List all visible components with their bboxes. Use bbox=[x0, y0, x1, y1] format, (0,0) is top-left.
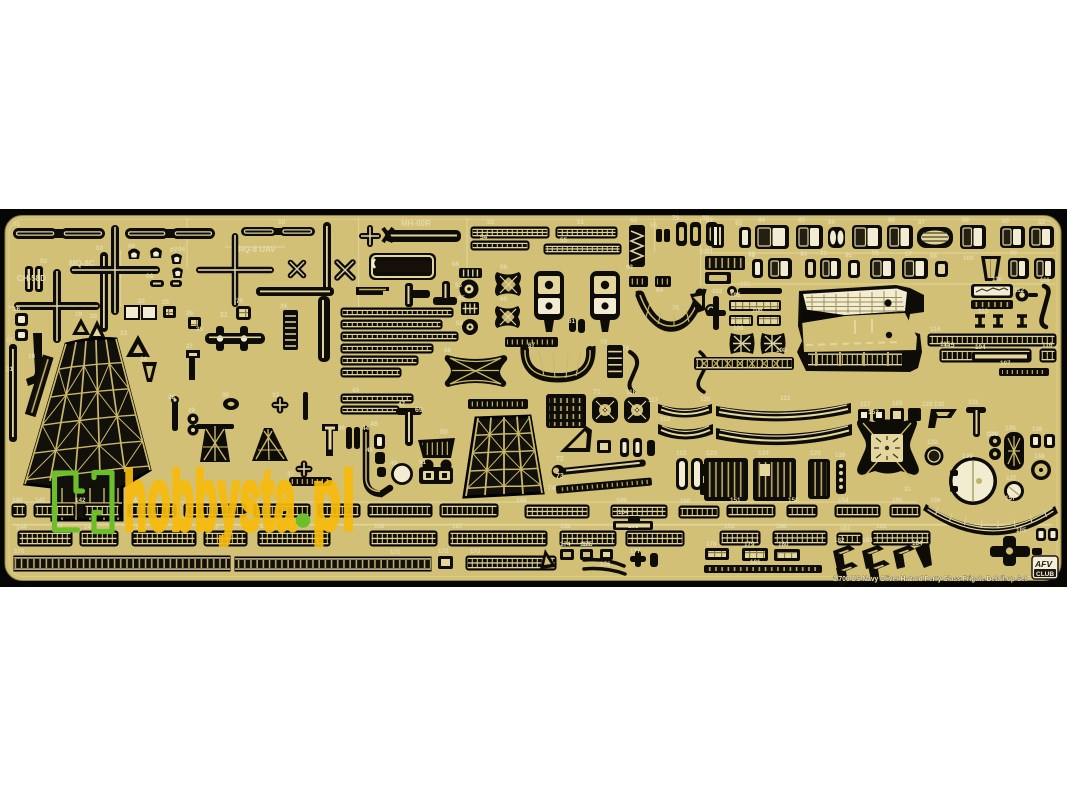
svg-text:MH-60R: MH-60R bbox=[401, 219, 431, 228]
svg-text:149: 149 bbox=[616, 497, 627, 504]
svg-text:124: 124 bbox=[758, 450, 769, 457]
svg-text:108: 108 bbox=[776, 347, 787, 354]
svg-text:54: 54 bbox=[480, 234, 488, 241]
svg-text:62: 62 bbox=[630, 217, 638, 224]
svg-text:109: 109 bbox=[733, 325, 744, 332]
svg-text:82: 82 bbox=[706, 217, 714, 224]
svg-text:123: 123 bbox=[706, 450, 717, 457]
svg-text:34: 34 bbox=[280, 303, 288, 310]
svg-text:57: 57 bbox=[905, 251, 913, 258]
svg-text:164: 164 bbox=[618, 509, 629, 516]
svg-text:44: 44 bbox=[362, 425, 370, 432]
svg-text:157: 157 bbox=[1005, 495, 1016, 502]
svg-text:31: 31 bbox=[904, 486, 912, 493]
svg-text:53: 53 bbox=[455, 282, 463, 289]
svg-text:49: 49 bbox=[390, 460, 398, 467]
svg-text:181: 181 bbox=[750, 559, 761, 566]
svg-text:139: 139 bbox=[962, 453, 973, 460]
svg-text:134: 134 bbox=[986, 431, 997, 438]
svg-text:122: 122 bbox=[676, 450, 687, 457]
svg-text:04: 04 bbox=[178, 246, 186, 253]
svg-text:137: 137 bbox=[1006, 475, 1017, 482]
svg-text:88: 88 bbox=[888, 217, 896, 224]
svg-text:115: 115 bbox=[940, 341, 951, 348]
svg-text:106: 106 bbox=[752, 307, 763, 314]
svg-text:177: 177 bbox=[630, 548, 641, 555]
svg-text:73: 73 bbox=[556, 473, 564, 480]
svg-text:140: 140 bbox=[12, 497, 23, 504]
svg-text:86: 86 bbox=[828, 219, 836, 226]
svg-text:CLUB: CLUB bbox=[1036, 571, 1054, 578]
svg-text:75: 75 bbox=[672, 305, 680, 312]
svg-text:51: 51 bbox=[419, 459, 427, 466]
svg-text:113: 113 bbox=[978, 308, 989, 315]
svg-text:07: 07 bbox=[170, 247, 178, 254]
svg-text:55: 55 bbox=[560, 237, 568, 244]
svg-text:112: 112 bbox=[1014, 287, 1025, 294]
svg-text:52: 52 bbox=[487, 219, 495, 226]
svg-text:100: 100 bbox=[963, 255, 974, 262]
svg-text:74: 74 bbox=[548, 485, 556, 492]
svg-text:131: 131 bbox=[968, 399, 979, 406]
svg-text:93: 93 bbox=[820, 250, 828, 257]
svg-text:141: 141 bbox=[35, 497, 46, 504]
svg-text:RQ-8 UAV: RQ-8 UAV bbox=[238, 245, 276, 254]
svg-text:16: 16 bbox=[13, 306, 21, 313]
svg-text:1/700 US Navy Oliver Hazard P: 1/700 US Navy Oliver Hazard Perry Class … bbox=[833, 574, 1027, 583]
svg-text:69: 69 bbox=[415, 407, 423, 414]
svg-text:85: 85 bbox=[798, 217, 806, 224]
svg-text:83: 83 bbox=[735, 220, 743, 227]
svg-text:144: 144 bbox=[16, 524, 27, 531]
svg-text:172: 172 bbox=[438, 548, 449, 555]
svg-text:116: 116 bbox=[1042, 342, 1053, 349]
svg-text:58: 58 bbox=[456, 320, 464, 327]
svg-text:102: 102 bbox=[712, 288, 723, 295]
svg-text:21: 21 bbox=[220, 312, 228, 319]
svg-text:150: 150 bbox=[680, 498, 691, 505]
svg-text:184: 184 bbox=[912, 540, 923, 547]
svg-text:45: 45 bbox=[366, 447, 374, 454]
svg-text:127: 127 bbox=[860, 401, 871, 408]
svg-text:111: 111 bbox=[1040, 277, 1050, 284]
svg-text:89: 89 bbox=[962, 217, 970, 224]
svg-text:155: 155 bbox=[892, 497, 903, 504]
svg-text:174: 174 bbox=[560, 541, 571, 548]
svg-text:65: 65 bbox=[458, 295, 466, 302]
svg-text:30: 30 bbox=[222, 392, 230, 399]
svg-text:151: 151 bbox=[730, 497, 741, 504]
svg-text:156: 156 bbox=[930, 497, 941, 504]
svg-text:22: 22 bbox=[138, 298, 146, 305]
svg-text:117: 117 bbox=[648, 397, 659, 404]
svg-text:20: 20 bbox=[90, 313, 98, 320]
svg-text:99: 99 bbox=[1010, 250, 1018, 257]
svg-text:59: 59 bbox=[500, 264, 508, 271]
svg-text:29: 29 bbox=[188, 407, 196, 414]
svg-text:46: 46 bbox=[338, 425, 346, 432]
svg-text:105: 105 bbox=[730, 292, 741, 299]
svg-text:167: 167 bbox=[452, 523, 463, 530]
svg-text:64: 64 bbox=[656, 287, 664, 294]
svg-text:92: 92 bbox=[748, 251, 756, 258]
svg-text:52: 52 bbox=[1038, 219, 1046, 226]
svg-text:61: 61 bbox=[568, 318, 576, 325]
svg-text:17: 17 bbox=[6, 337, 14, 344]
svg-text:152: 152 bbox=[788, 497, 799, 504]
svg-text:119: 119 bbox=[660, 416, 671, 423]
svg-text:33: 33 bbox=[272, 392, 280, 399]
svg-text:18: 18 bbox=[28, 353, 36, 360]
svg-text:06: 06 bbox=[128, 243, 136, 250]
svg-text:170: 170 bbox=[14, 548, 25, 555]
svg-text:120: 120 bbox=[700, 396, 711, 403]
svg-text:02: 02 bbox=[40, 258, 48, 265]
svg-text:31: 31 bbox=[6, 366, 14, 373]
svg-text:48: 48 bbox=[370, 421, 378, 428]
svg-text:166: 166 bbox=[374, 523, 385, 530]
svg-text:19: 19 bbox=[75, 311, 83, 318]
svg-text:72: 72 bbox=[556, 456, 564, 463]
svg-text:179: 179 bbox=[744, 541, 755, 548]
svg-text:121: 121 bbox=[780, 395, 791, 402]
svg-text:43: 43 bbox=[352, 387, 360, 394]
svg-text:101: 101 bbox=[740, 281, 751, 288]
svg-text:98: 98 bbox=[930, 253, 938, 260]
svg-text:84: 84 bbox=[758, 217, 766, 224]
svg-text:87: 87 bbox=[918, 219, 926, 226]
svg-text:01: 01 bbox=[13, 221, 21, 228]
svg-text:50: 50 bbox=[440, 429, 448, 436]
svg-text:180: 180 bbox=[778, 541, 789, 548]
svg-text:56: 56 bbox=[650, 222, 658, 229]
svg-text:76: 76 bbox=[622, 345, 630, 352]
svg-text:159: 159 bbox=[724, 523, 735, 530]
svg-text:153: 153 bbox=[868, 409, 879, 416]
svg-text:171: 171 bbox=[390, 549, 401, 556]
svg-text:154: 154 bbox=[838, 497, 849, 504]
svg-text:175: 175 bbox=[582, 541, 593, 548]
svg-text:51: 51 bbox=[577, 219, 585, 226]
svg-text:63: 63 bbox=[626, 264, 634, 271]
svg-text:27: 27 bbox=[186, 343, 194, 350]
svg-text:176: 176 bbox=[600, 561, 611, 568]
svg-text:68: 68 bbox=[444, 347, 452, 354]
svg-text:79: 79 bbox=[672, 215, 680, 222]
svg-text:90: 90 bbox=[1002, 218, 1010, 225]
svg-text:132: 132 bbox=[927, 439, 938, 446]
svg-text:AFV: AFV bbox=[1034, 559, 1053, 569]
svg-text:118: 118 bbox=[626, 389, 637, 396]
svg-text:24: 24 bbox=[140, 356, 148, 363]
svg-text:70: 70 bbox=[600, 339, 608, 346]
svg-text:160: 160 bbox=[776, 523, 787, 530]
svg-text:126: 126 bbox=[835, 452, 846, 459]
svg-text:MQ-8C: MQ-8C bbox=[69, 259, 95, 268]
svg-text:182: 182 bbox=[834, 537, 845, 544]
svg-text:142: 142 bbox=[75, 497, 86, 504]
svg-text:128: 128 bbox=[892, 400, 903, 407]
svg-text:47: 47 bbox=[398, 401, 406, 408]
svg-text:173: 173 bbox=[470, 548, 481, 555]
svg-text:104: 104 bbox=[975, 344, 986, 351]
svg-text:162: 162 bbox=[876, 523, 887, 530]
svg-text:135: 135 bbox=[1005, 425, 1016, 432]
svg-text:158: 158 bbox=[560, 523, 571, 530]
svg-text:185: 185 bbox=[1016, 527, 1027, 534]
svg-text:107: 107 bbox=[1000, 360, 1011, 367]
svg-text:129: 129 bbox=[922, 401, 933, 408]
svg-text:75: 75 bbox=[236, 298, 244, 305]
svg-text:71: 71 bbox=[593, 389, 601, 396]
svg-text:136: 136 bbox=[1032, 426, 1043, 433]
svg-text:28: 28 bbox=[168, 394, 176, 401]
svg-text:110: 110 bbox=[992, 276, 1003, 283]
svg-text:183: 183 bbox=[862, 537, 873, 544]
svg-text:23: 23 bbox=[120, 330, 128, 337]
svg-text:125: 125 bbox=[810, 450, 821, 457]
svg-text:178: 178 bbox=[706, 541, 717, 548]
svg-text:95: 95 bbox=[845, 252, 853, 259]
svg-text:66: 66 bbox=[452, 261, 460, 268]
svg-text:138: 138 bbox=[1034, 453, 1045, 460]
svg-text:60: 60 bbox=[500, 296, 508, 303]
svg-text:03: 03 bbox=[96, 245, 104, 252]
svg-text:26: 26 bbox=[186, 310, 194, 317]
svg-text:67: 67 bbox=[528, 342, 536, 349]
svg-text:168: 168 bbox=[628, 523, 639, 530]
svg-text:35: 35 bbox=[196, 326, 204, 333]
svg-text:CH-58D: CH-58D bbox=[17, 274, 46, 283]
svg-text:161: 161 bbox=[840, 525, 851, 532]
svg-text:96: 96 bbox=[872, 250, 880, 257]
svg-text:94: 94 bbox=[800, 251, 808, 258]
svg-text:91: 91 bbox=[706, 248, 714, 255]
svg-text:25: 25 bbox=[162, 299, 170, 306]
svg-text:10: 10 bbox=[278, 219, 286, 226]
svg-text:130: 130 bbox=[934, 401, 945, 408]
svg-text:114: 114 bbox=[930, 326, 941, 333]
svg-text:148: 148 bbox=[516, 497, 527, 504]
svg-text:08: 08 bbox=[146, 273, 154, 280]
